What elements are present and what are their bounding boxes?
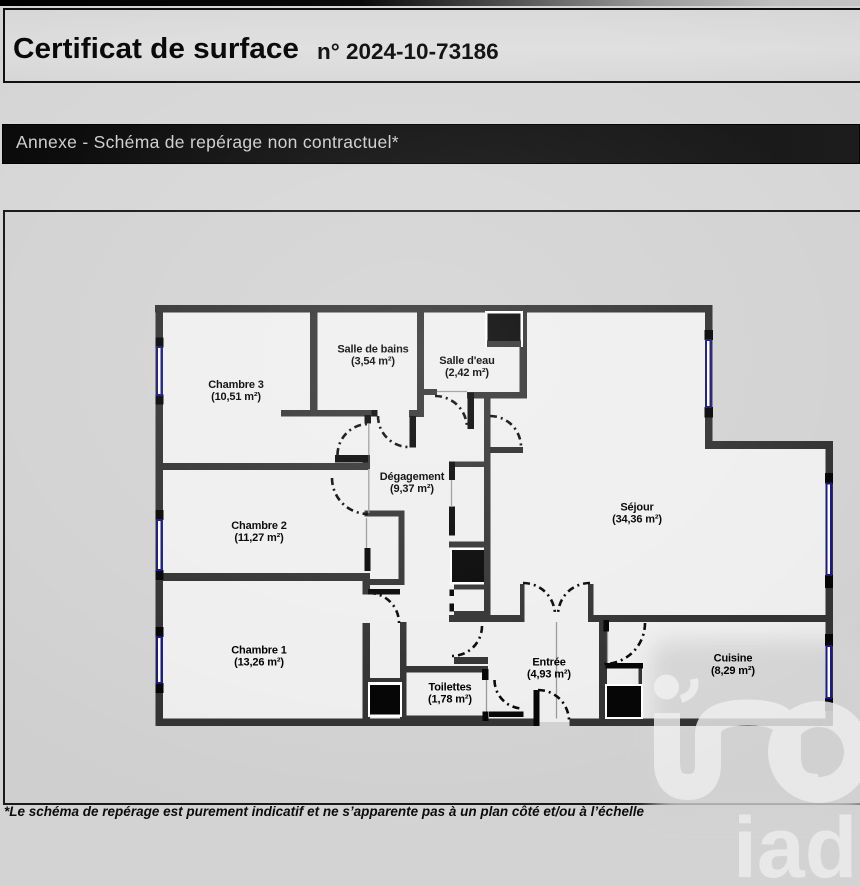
svg-text:Salle d'eau: Salle d'eau [439, 355, 494, 367]
svg-text:Entrée: Entrée [532, 657, 565, 669]
svg-text:(34,36 m²): (34,36 m²) [612, 514, 662, 526]
svg-text:(11,27 m²): (11,27 m²) [234, 532, 284, 544]
svg-text:Cuisine: Cuisine [714, 653, 753, 665]
svg-text:(8,29 m²): (8,29 m²) [711, 665, 755, 677]
svg-text:(10,51 m²): (10,51 m²) [211, 391, 261, 403]
svg-text:(13,26 m²): (13,26 m²) [234, 657, 284, 669]
svg-text:Chambre 2: Chambre 2 [231, 520, 287, 532]
svg-text:(9,37 m²): (9,37 m²) [390, 483, 434, 495]
svg-text:Toilettes: Toilettes [428, 682, 471, 694]
svg-text:Salle de bains: Salle de bains [337, 344, 408, 356]
svg-text:Séjour: Séjour [620, 502, 654, 514]
svg-text:Chambre 3: Chambre 3 [208, 379, 264, 391]
svg-text:(1,78 m²): (1,78 m²) [428, 694, 472, 706]
svg-text:Dégagement: Dégagement [380, 471, 445, 483]
svg-text:(4,93 m²): (4,93 m²) [527, 669, 571, 681]
svg-text:(2,42 m²): (2,42 m²) [445, 367, 489, 379]
svg-text:iad: iad [733, 800, 857, 886]
svg-text:(3,54 m²): (3,54 m²) [351, 356, 395, 368]
svg-text:Chambre 1: Chambre 1 [231, 645, 287, 657]
